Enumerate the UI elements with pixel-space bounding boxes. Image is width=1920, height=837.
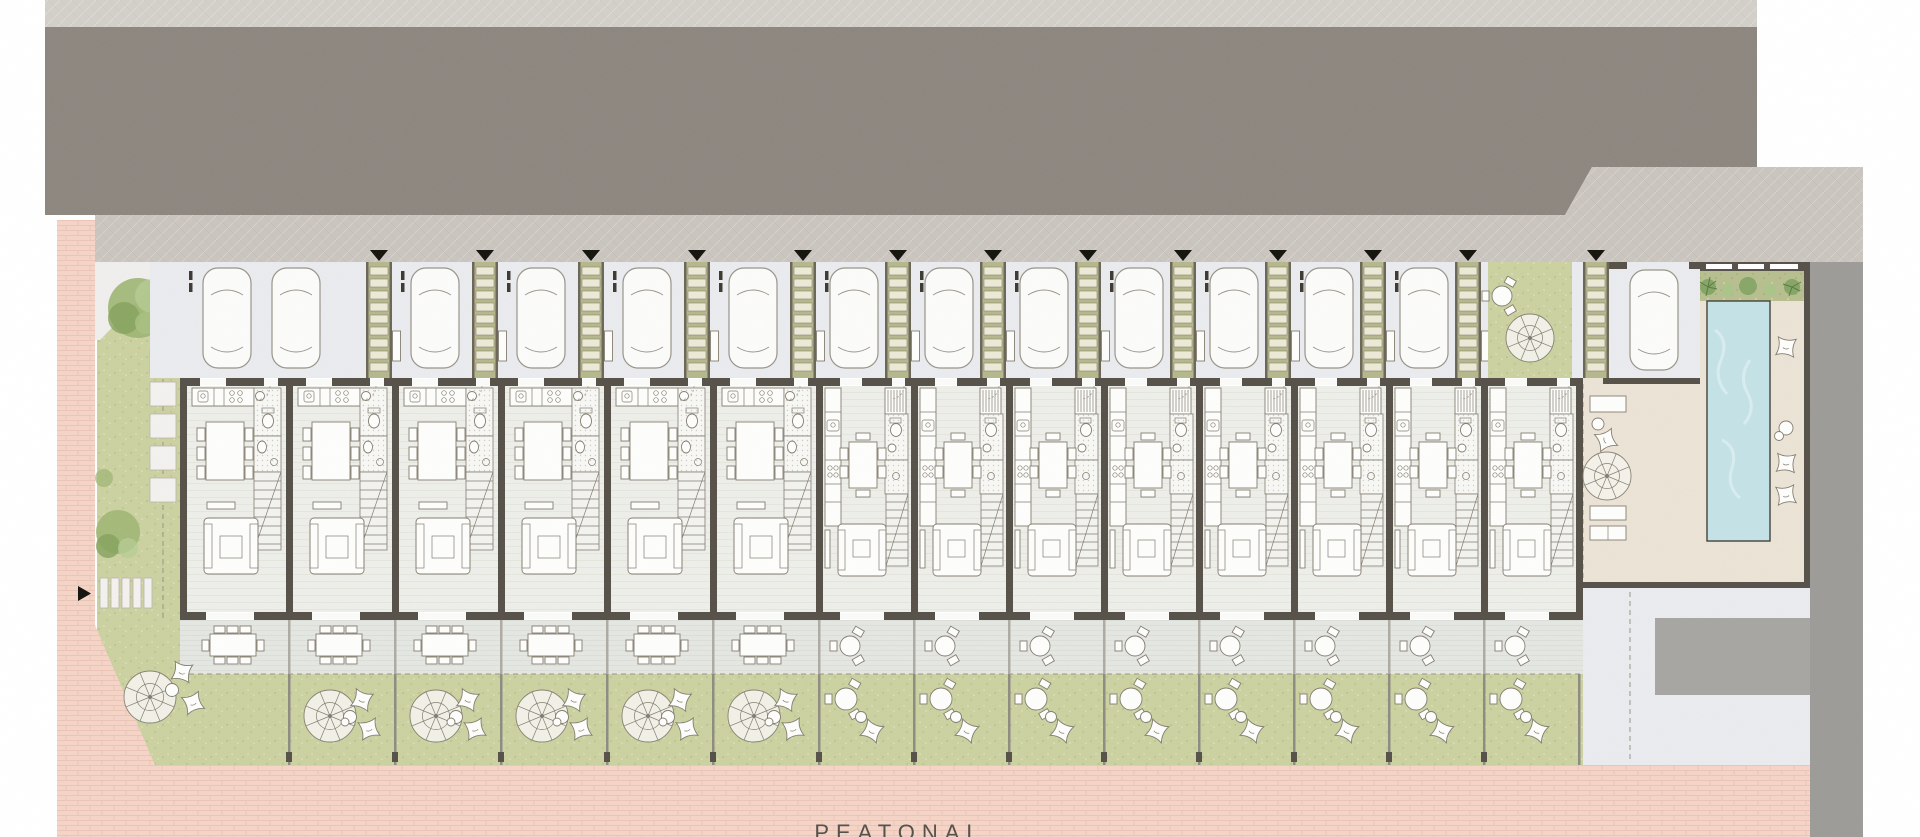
concrete-pad	[1655, 618, 1810, 695]
garden-band	[180, 674, 1583, 765]
unit-narrow-1	[816, 378, 911, 620]
garage-tick	[1110, 271, 1114, 280]
deck-table-icon	[1590, 396, 1626, 412]
car-1	[203, 268, 251, 368]
car-13	[1400, 268, 1448, 368]
walkway-post	[393, 331, 401, 361]
entry-walkway-9	[1170, 262, 1196, 378]
garage-tick	[189, 283, 193, 292]
car-14	[1630, 270, 1678, 370]
unit-wide-3	[392, 378, 498, 620]
entry-garden-patch	[1482, 262, 1572, 378]
site-plan: PEATONAL	[0, 0, 1920, 837]
car-11	[1210, 268, 1258, 368]
entry-walkway-2	[472, 262, 498, 378]
unit-narrow-2	[911, 378, 1006, 620]
garage-tick	[1015, 283, 1019, 292]
entry-walkway-11	[1360, 262, 1386, 378]
garage-tick	[1395, 271, 1399, 280]
unit-wide-5	[604, 378, 710, 620]
entry-walkway-5	[790, 262, 816, 378]
garage-tick	[825, 271, 829, 280]
walkway-post	[499, 331, 507, 361]
entry-walkway-13	[1583, 262, 1609, 378]
garage-tick	[1395, 283, 1399, 292]
entry-walkway-10	[1265, 262, 1291, 378]
garage-tick	[401, 271, 405, 280]
garage-tick	[1110, 283, 1114, 292]
sun-lounger-icon	[1776, 453, 1795, 472]
car-3	[411, 268, 459, 368]
terrace-band	[180, 620, 1583, 674]
swimming-pool	[1707, 301, 1770, 541]
car-7	[830, 268, 878, 368]
entry-walkway-1	[366, 262, 392, 378]
entry-walkway-6	[885, 262, 911, 378]
right-street	[1810, 262, 1863, 837]
garage-tick	[825, 283, 829, 292]
parasol-icon	[1583, 452, 1631, 500]
outdoor-table-icon	[316, 634, 362, 656]
unit-narrow-4	[1101, 378, 1196, 620]
street-label-peatonal: PEATONAL	[814, 820, 985, 837]
outdoor-table-icon	[210, 634, 256, 656]
parasol-icon	[1506, 314, 1554, 362]
car-10	[1115, 268, 1163, 368]
walkway-post	[1007, 331, 1015, 361]
garage-tick	[1300, 271, 1304, 280]
garage-tick	[719, 271, 723, 280]
garage-tick	[1205, 283, 1209, 292]
parasol-icon	[124, 671, 176, 723]
garage-tick	[189, 271, 193, 280]
garage-tick	[613, 271, 617, 280]
unit-narrow-8	[1481, 378, 1576, 620]
entry-walkway-12	[1455, 262, 1481, 378]
road-asphalt	[45, 27, 1757, 215]
garage-tick	[507, 283, 511, 292]
car-2	[272, 268, 320, 368]
unit-narrow-5	[1196, 378, 1291, 620]
unit-narrow-6	[1291, 378, 1386, 620]
road	[45, 0, 1863, 262]
garage-tick	[1015, 271, 1019, 280]
garage-tick	[507, 271, 511, 280]
walkway-post	[1102, 331, 1110, 361]
garage-tick	[920, 283, 924, 292]
entry-walkway-8	[1075, 262, 1101, 378]
unit-narrow-7	[1386, 378, 1481, 620]
unit-wide-2	[286, 378, 392, 620]
unit-wide-6	[710, 378, 816, 620]
car-4	[517, 268, 565, 368]
outdoor-table-icon	[740, 634, 786, 656]
car-12	[1305, 268, 1353, 368]
walkway-post	[1292, 331, 1300, 361]
entry-walkway-7	[980, 262, 1006, 378]
sun-lounger-icon	[1776, 337, 1796, 357]
end-wall	[1576, 378, 1583, 620]
unit-narrow-3	[1006, 378, 1101, 620]
car-5	[623, 268, 671, 368]
walkway-post	[711, 331, 719, 361]
car-6	[729, 268, 777, 368]
car-9	[1020, 268, 1068, 368]
garage-tick	[920, 271, 924, 280]
entry-walkway-3	[578, 262, 604, 378]
garage-tick	[719, 283, 723, 292]
walkway-post	[817, 331, 825, 361]
outdoor-table-icon	[634, 634, 680, 656]
garage-tick	[1300, 283, 1304, 292]
outdoor-table-icon	[422, 634, 468, 656]
garage-tick	[613, 283, 617, 292]
walkway-post	[1197, 331, 1205, 361]
walkway-post	[912, 331, 920, 361]
walkway-post	[605, 331, 613, 361]
car-8	[925, 268, 973, 368]
sun-lounger-icon	[1776, 485, 1796, 505]
walkway-post	[1387, 331, 1395, 361]
garage-tick	[401, 283, 405, 292]
entry-walkway-4	[684, 262, 710, 378]
unit-wide-4	[498, 378, 604, 620]
unit-wide-1	[180, 378, 286, 620]
outdoor-table-icon	[528, 634, 574, 656]
garage-tick	[1205, 271, 1209, 280]
